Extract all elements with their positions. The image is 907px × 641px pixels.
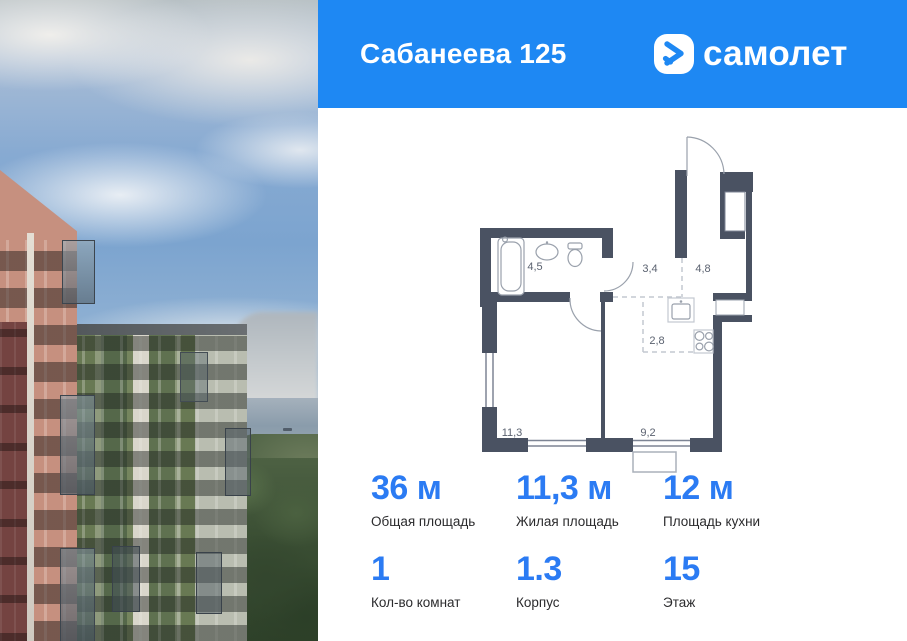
stat-kitchen-area: 12 м Площадь кухни: [663, 471, 833, 552]
stat-floor: 15 Этаж: [663, 552, 833, 633]
stat-rooms-count: 1 Кол-во комнат: [371, 552, 516, 633]
stat-value: 1: [371, 552, 516, 586]
stat-living-area: 11,3 м Жилая площадь: [516, 471, 663, 552]
samolet-logo-icon: [654, 34, 694, 74]
building-photo: [0, 0, 318, 641]
room-area-bathroom: 4,5: [527, 261, 542, 273]
stat-value: 11,3 м: [516, 471, 663, 505]
balcony-glass: [60, 548, 95, 641]
room-area-entrance: 4,8: [695, 263, 710, 275]
stat-label: Этаж: [663, 595, 833, 610]
balcony-glass: [60, 395, 95, 495]
appliance-niche: [716, 300, 744, 315]
room-area-hallway: 3,4: [642, 263, 657, 275]
building-edge: [27, 233, 34, 641]
brand-logo: самолет: [654, 0, 848, 108]
brand-name: самолет: [703, 34, 848, 74]
room-area-living: 11,3: [502, 427, 523, 439]
header-bar: Сабанеева 125 самолет: [318, 0, 907, 108]
stat-label: Жилая площадь: [516, 514, 663, 529]
bathtub-icon: [498, 237, 524, 295]
toilet-icon: [568, 243, 582, 267]
walls: [480, 170, 753, 452]
stat-building: 1.3 Корпус: [516, 552, 663, 633]
page-title: Сабанеева 125: [360, 0, 567, 108]
balcony-glass: [180, 352, 208, 402]
maroon-facade: [0, 322, 28, 641]
listing-card: Сабанеева 125 самолет: [0, 0, 907, 641]
sink-icon: [536, 241, 558, 260]
stat-value: 15: [663, 552, 833, 586]
stat-total-area: 36 м Общая площадь: [371, 471, 516, 552]
balcony-glass: [62, 240, 95, 304]
stat-value: 1.3: [516, 552, 663, 586]
balcony-glass: [196, 552, 222, 614]
stat-label: Общая площадь: [371, 514, 516, 529]
stat-value: 36 м: [371, 471, 516, 505]
stat-label: Кол-во комнат: [371, 595, 516, 610]
stove-icon: [694, 330, 713, 353]
floor-plan: 4,5 3,4 4,8 2,8 11,3 9,2: [455, 125, 855, 475]
apartment-stats: 36 м Общая площадь 11,3 м Жилая площадь …: [371, 471, 871, 633]
room-area-kitchenliving: 9,2: [640, 427, 655, 439]
balcony-glass: [225, 428, 251, 496]
stat-value: 12 м: [663, 471, 833, 505]
room-area-kitchen: 2,8: [649, 335, 664, 347]
kitchen-sink-icon: [668, 298, 694, 322]
stat-label: Площадь кухни: [663, 514, 833, 529]
stat-label: Корпус: [516, 595, 663, 610]
balcony-glass: [112, 546, 140, 612]
shaft-niche: [725, 192, 745, 231]
ship: [283, 428, 292, 431]
